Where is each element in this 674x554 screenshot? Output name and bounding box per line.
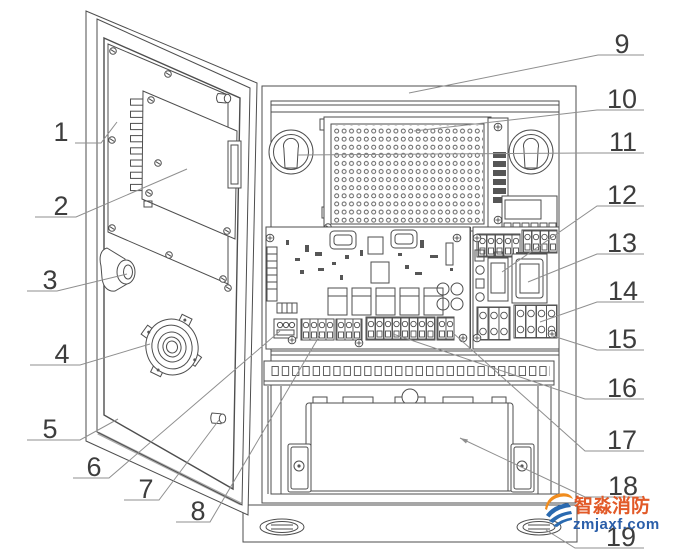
door-pin-top	[217, 94, 231, 104]
battery-box	[306, 389, 513, 491]
keyhole-mount-left	[269, 130, 313, 174]
door-pin-bottom	[211, 413, 226, 424]
callout-label-5: 5	[42, 414, 57, 444]
callout-label-8: 8	[190, 496, 205, 526]
callout-label-6: 6	[86, 452, 101, 482]
callout-label-1: 1	[53, 117, 68, 147]
power-switch	[512, 252, 547, 303]
callout-label-4: 4	[54, 339, 69, 369]
callout-label-3: 3	[42, 265, 57, 295]
cabinet-diagram: 1 2 3 4 5 6 7 8 9 10 11 12 13 14 15 16 1…	[0, 0, 674, 554]
watermark-brand-text: 智淼消防	[574, 494, 650, 517]
callout-label-11: 11	[609, 127, 637, 157]
callout-label-13: 13	[607, 228, 637, 258]
callout-label-12: 12	[607, 180, 637, 210]
main-circuit-board	[266, 227, 471, 349]
callout-label-7: 7	[138, 474, 153, 504]
fuse-holder	[488, 252, 508, 301]
callout-label-17: 17	[607, 425, 637, 455]
callout-label-10: 10	[607, 84, 637, 114]
callout-label-15: 15	[607, 324, 637, 354]
power-terminal-blocks-bottom	[477, 305, 557, 340]
diagram-page: 1 2 3 4 5 6 7 8 9 10 11 12 13 14 15 16 1…	[0, 0, 674, 554]
base-plinth	[243, 505, 577, 542]
cabinet-door	[86, 11, 257, 515]
wiring-duct	[264, 361, 554, 385]
relay-bank	[328, 288, 443, 315]
callout-label-14: 14	[608, 276, 638, 306]
perforated-vent-plate	[320, 117, 491, 231]
callout-label-9: 9	[614, 29, 629, 59]
battery-bracket-left	[288, 444, 311, 492]
callout-label-2: 2	[53, 191, 68, 221]
callout-label-16: 16	[607, 373, 637, 403]
power-section	[473, 227, 559, 349]
keyhole-mount-right	[509, 130, 553, 174]
watermark-site-text: zmjaxf.com	[573, 516, 660, 533]
